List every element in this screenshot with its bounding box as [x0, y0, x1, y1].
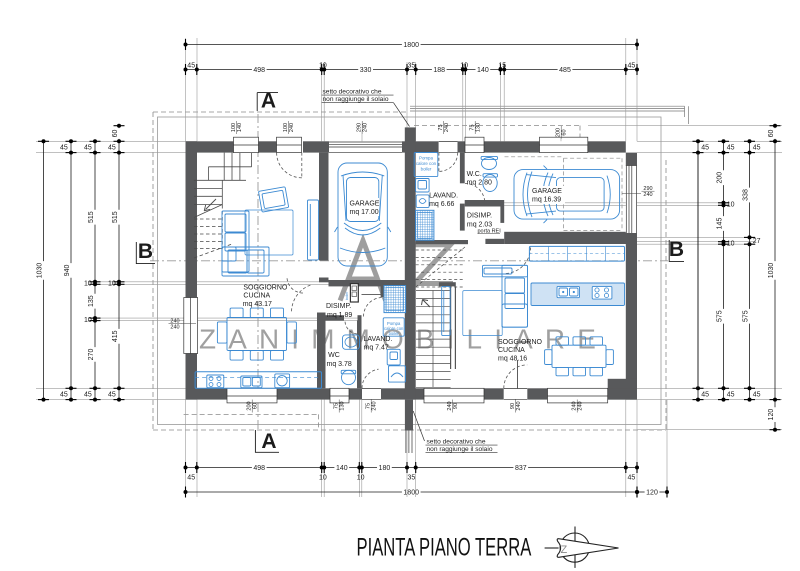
svg-text:10: 10 — [357, 475, 365, 482]
svg-text:CUCINA: CUCINA — [243, 293, 270, 300]
svg-text:non raggiunge il solaio: non raggiunge il solaio — [323, 96, 389, 103]
svg-text:240: 240 — [170, 325, 179, 331]
svg-text:mq 6.66: mq 6.66 — [429, 201, 454, 208]
svg-text:90: 90 — [510, 403, 516, 409]
svg-text:415: 415 — [112, 330, 119, 342]
svg-text:45: 45 — [187, 63, 195, 70]
svg-text:75: 75 — [438, 124, 444, 130]
svg-text:mq 1.89: mq 1.89 — [327, 312, 352, 319]
svg-text:mq 2.03: mq 2.03 — [467, 221, 492, 228]
svg-text:mq 3.78: mq 3.78 — [327, 361, 352, 368]
svg-text:10: 10 — [727, 240, 735, 247]
svg-text:75: 75 — [365, 403, 371, 409]
svg-text:45: 45 — [60, 144, 68, 151]
svg-text:45: 45 — [108, 391, 116, 398]
svg-text:135: 135 — [88, 295, 95, 307]
svg-text:240: 240 — [372, 401, 378, 410]
svg-text:10: 10 — [319, 475, 327, 482]
svg-text:Z: Z — [561, 544, 568, 556]
svg-text:mq 48.16: mq 48.16 — [498, 356, 527, 363]
svg-text:75: 75 — [469, 124, 475, 130]
svg-text:LAVAND.: LAVAND. — [429, 192, 458, 199]
svg-text:PIANTA PIANO TERRA: PIANTA PIANO TERRA — [357, 534, 532, 561]
svg-text:10: 10 — [84, 280, 92, 287]
svg-text:240: 240 — [170, 318, 179, 324]
svg-text:boiler: boiler — [421, 167, 432, 172]
svg-text:60: 60 — [768, 130, 775, 138]
svg-text:575: 575 — [742, 310, 749, 322]
svg-text:200: 200 — [555, 128, 561, 137]
svg-text:10: 10 — [319, 63, 327, 70]
svg-text:130: 130 — [476, 123, 482, 132]
svg-text:45: 45 — [628, 475, 636, 482]
svg-text:GARAGE: GARAGE — [532, 188, 562, 195]
svg-text:WC: WC — [328, 352, 340, 359]
svg-text:1030: 1030 — [36, 263, 43, 279]
svg-text:100: 100 — [283, 123, 289, 132]
svg-text:Pompa: Pompa — [419, 156, 433, 161]
svg-text:45: 45 — [84, 391, 92, 398]
svg-text:1800: 1800 — [403, 489, 419, 496]
svg-text:45: 45 — [187, 475, 195, 482]
svg-text:60: 60 — [112, 130, 119, 138]
svg-text:mq 17.00: mq 17.00 — [350, 209, 379, 216]
svg-text:330: 330 — [360, 67, 372, 74]
svg-text:338: 338 — [742, 189, 749, 201]
svg-text:calore con: calore con — [416, 161, 437, 166]
svg-text:240: 240 — [363, 123, 369, 132]
svg-text:35: 35 — [408, 63, 416, 70]
svg-text:SOGGIORNO: SOGGIORNO — [243, 284, 288, 291]
svg-text:130: 130 — [340, 401, 346, 410]
svg-text:240: 240 — [444, 123, 450, 132]
svg-text:575: 575 — [716, 310, 723, 322]
svg-text:CUCINA: CUCINA — [498, 347, 525, 354]
svg-text:GARAGE: GARAGE — [350, 201, 380, 208]
svg-text:60: 60 — [562, 129, 568, 135]
svg-text:485: 485 — [559, 67, 571, 74]
svg-text:515: 515 — [112, 211, 119, 223]
svg-text:1800: 1800 — [403, 42, 419, 49]
svg-text:120: 120 — [768, 409, 775, 421]
svg-text:10: 10 — [108, 280, 116, 287]
svg-text:290: 290 — [643, 186, 652, 192]
svg-text:45: 45 — [84, 144, 92, 151]
svg-text:LAVAND.: LAVAND. — [364, 336, 393, 343]
svg-text:45: 45 — [108, 144, 116, 151]
svg-text:setto decorativo che: setto decorativo che — [323, 89, 382, 96]
svg-text:180: 180 — [379, 465, 391, 472]
svg-text:10: 10 — [84, 317, 92, 324]
svg-text:200: 200 — [246, 401, 252, 410]
svg-text:W.C.: W.C. — [467, 171, 482, 178]
svg-text:1030: 1030 — [768, 263, 775, 279]
svg-text:setto decorativo che: setto decorativo che — [427, 439, 486, 446]
svg-text:mq 43.17: mq 43.17 — [243, 301, 272, 308]
svg-text:837: 837 — [515, 465, 527, 472]
svg-text:45: 45 — [60, 391, 68, 398]
svg-text:mq 16.39: mq 16.39 — [532, 197, 561, 204]
svg-text:DISIMP.: DISIMP. — [467, 213, 492, 220]
svg-text:45: 45 — [628, 63, 636, 70]
svg-text:90: 90 — [453, 403, 459, 409]
svg-text:boiler: boiler — [345, 291, 349, 300]
svg-text:75: 75 — [333, 403, 339, 409]
svg-text:140: 140 — [336, 465, 348, 472]
svg-text:15: 15 — [498, 63, 506, 70]
svg-text:DISIMP.: DISIMP. — [326, 303, 351, 310]
svg-text:non raggiunge il solaio: non raggiunge il solaio — [427, 446, 493, 453]
svg-text:45: 45 — [753, 391, 761, 398]
svg-text:200: 200 — [716, 172, 723, 184]
svg-text:45: 45 — [727, 391, 735, 398]
svg-text:515: 515 — [88, 211, 95, 223]
svg-text:SOGGIORNO: SOGGIORNO — [498, 339, 543, 346]
svg-text:240: 240 — [516, 401, 522, 410]
svg-text:mq 7.47: mq 7.47 — [364, 345, 389, 352]
svg-text:45: 45 — [753, 144, 761, 151]
svg-text:240: 240 — [571, 401, 577, 410]
svg-text:240: 240 — [447, 401, 453, 410]
svg-text:27: 27 — [753, 238, 761, 245]
svg-text:100: 100 — [231, 123, 237, 132]
svg-text:940: 940 — [64, 264, 71, 276]
svg-text:145: 145 — [716, 218, 723, 230]
svg-text:45: 45 — [701, 391, 709, 398]
svg-text:270: 270 — [88, 349, 95, 361]
svg-text:240: 240 — [643, 192, 652, 198]
svg-text:140: 140 — [477, 67, 489, 74]
svg-text:45: 45 — [727, 144, 735, 151]
svg-text:45: 45 — [701, 144, 709, 151]
svg-text:290: 290 — [356, 123, 362, 132]
svg-text:60: 60 — [253, 403, 259, 409]
svg-text:188: 188 — [433, 67, 445, 74]
svg-text:10: 10 — [460, 63, 468, 70]
svg-text:B: B — [669, 238, 684, 261]
svg-text:498: 498 — [253, 67, 265, 74]
svg-text:10: 10 — [727, 202, 735, 209]
svg-text:240: 240 — [578, 401, 584, 410]
svg-text:A: A — [261, 430, 276, 453]
svg-text:35: 35 — [408, 475, 416, 482]
svg-text:B: B — [138, 240, 153, 263]
svg-text:mq 2.80: mq 2.80 — [467, 180, 492, 187]
svg-text:498: 498 — [253, 465, 265, 472]
svg-text:140: 140 — [237, 123, 243, 132]
svg-text:120: 120 — [646, 489, 658, 496]
svg-text:240: 240 — [289, 123, 295, 132]
